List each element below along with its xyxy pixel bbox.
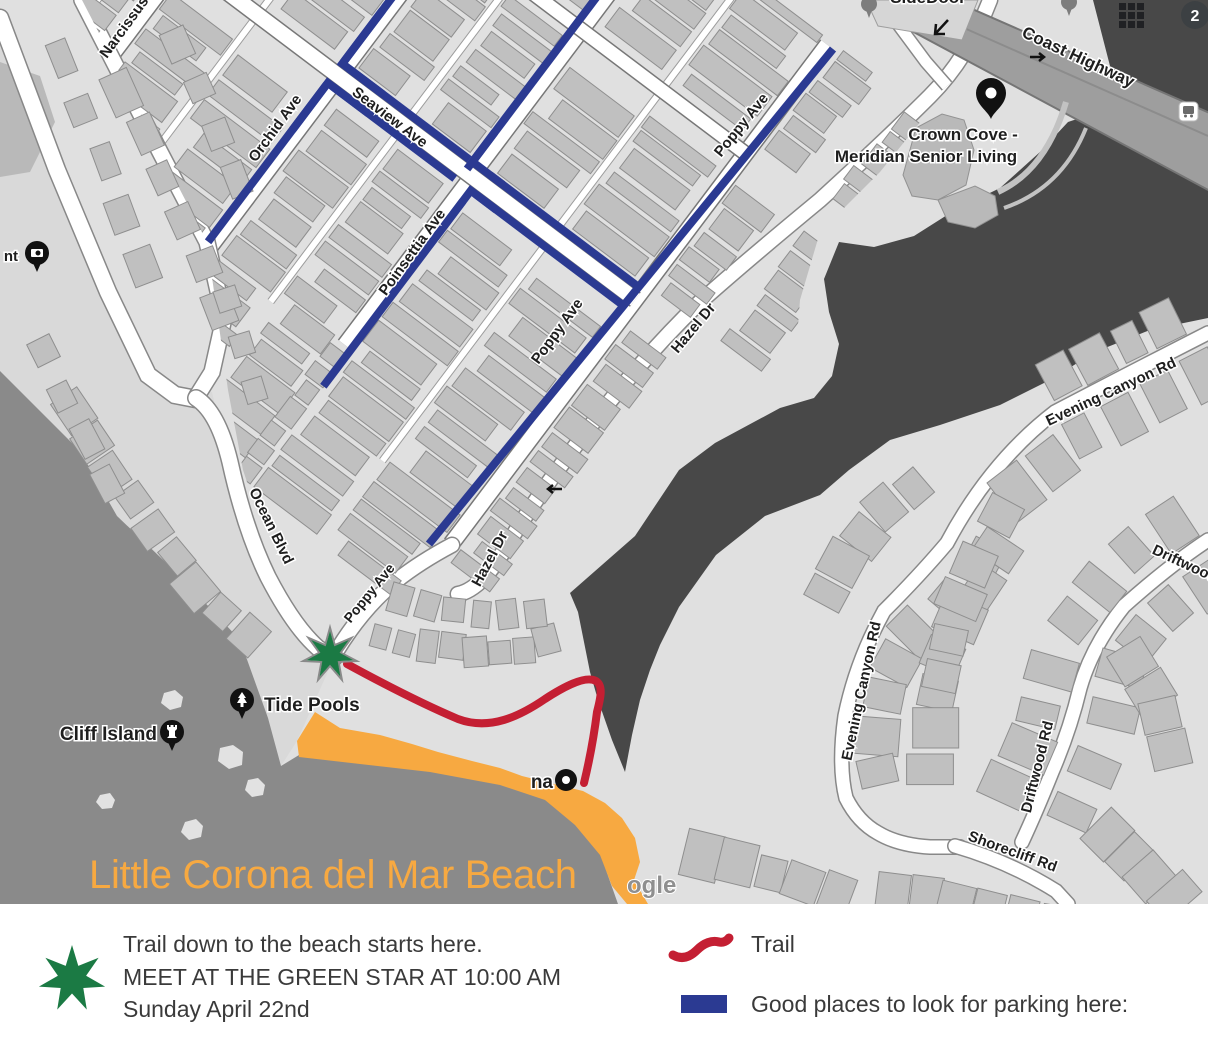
svg-text:ogle: ogle [627,872,676,899]
svg-text:Sunday April 22nd: Sunday April 22nd [123,996,310,1022]
svg-text:MEET AT THE GREEN STAR AT 10:0: MEET AT THE GREEN STAR AT 10:00 AM [123,964,561,990]
svg-text:Good places to look for parkin: Good places to look for parking here: [751,991,1128,1017]
svg-text:Crown Cove -: Crown Cove - [908,125,1018,144]
svg-text:na: na [531,772,554,793]
svg-text:Meridian Senior Living: Meridian Senior Living [835,147,1017,166]
svg-text:Tide Pools: Tide Pools [264,695,360,716]
svg-text:nt: nt [4,248,18,265]
svg-text:Cliff Island: Cliff Island [60,724,157,745]
svg-text:SideDoor: SideDoor [890,0,966,7]
svg-text:2: 2 [1191,8,1200,25]
svg-text:Trail down to the beach starts: Trail down to the beach starts here. [123,931,483,957]
svg-text:Trail: Trail [751,931,795,957]
svg-text:Little Corona del Mar Beach: Little Corona del Mar Beach [89,853,577,897]
